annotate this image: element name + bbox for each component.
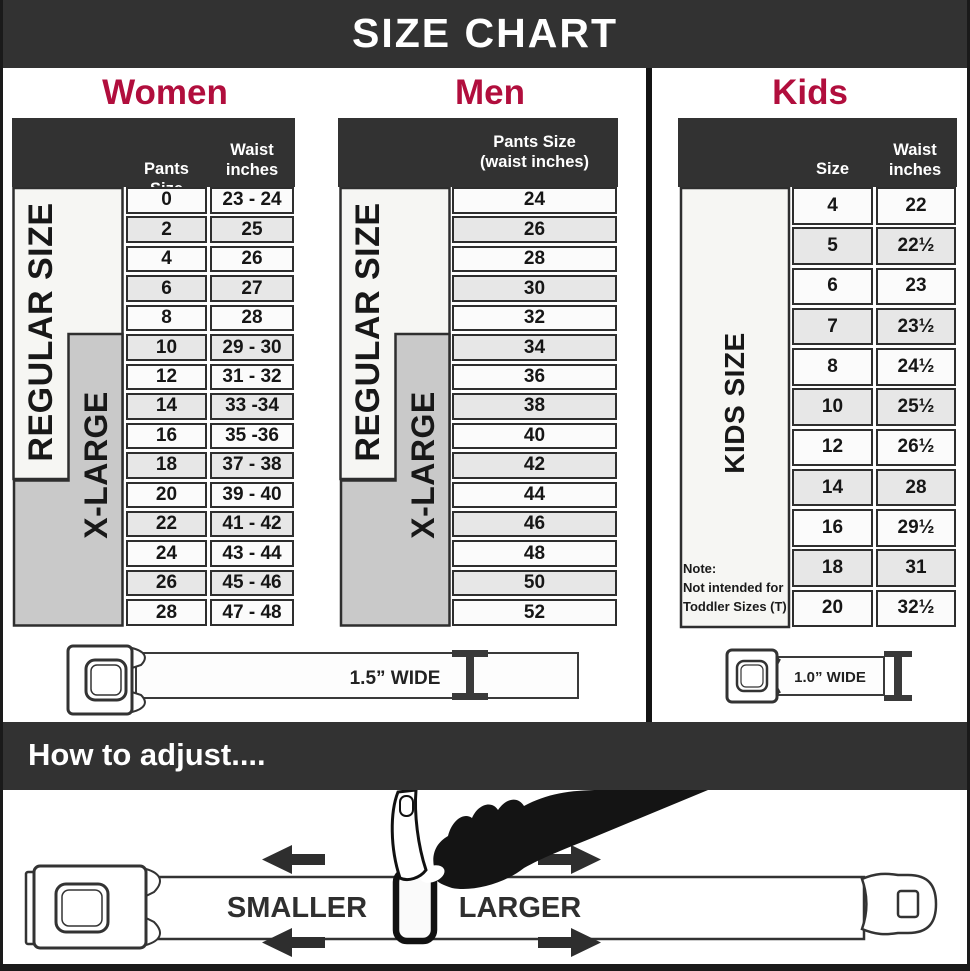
table-row: 38: [452, 393, 617, 420]
table-row: 44: [452, 482, 617, 509]
pants-size-cell: 14: [126, 393, 207, 420]
waist-inches-cell: 23: [876, 268, 956, 306]
pants-size-cell: 10: [126, 334, 207, 361]
waist-inches-cell: 23½: [876, 308, 956, 346]
table-row: 36: [452, 364, 617, 391]
women-xlarge-label: X-LARGE: [79, 315, 113, 615]
women-table-body: 0 23 - 24 2 25 4 26 6 27 8 28 10 29 - 30…: [126, 187, 294, 626]
table-row: 10 29 - 30: [126, 334, 294, 361]
pants-size-cell: 0: [126, 187, 207, 214]
waist-inches-cell: 43 - 44: [210, 540, 294, 567]
smaller-label: SMALLER: [227, 892, 367, 924]
table-row: 6 27: [126, 275, 294, 302]
table-row: 24 43 - 44: [126, 540, 294, 567]
table-row: 26 45 - 46: [126, 570, 294, 597]
table-row: 0 23 - 24: [126, 187, 294, 214]
pants-size-cell: 20: [126, 482, 207, 509]
pants-size-cell: 46: [452, 511, 617, 538]
belt-buckle-icon: [68, 646, 132, 714]
waist-inches-cell: 22½: [876, 227, 956, 265]
table-row: 4 22: [792, 187, 956, 225]
table-row: 6 23: [792, 268, 956, 306]
thumb-illustration: [392, 790, 426, 880]
women-table-header: Pants Size Waist inches: [12, 118, 295, 187]
men-section-title: Men: [330, 72, 650, 114]
table-row: 2 25: [126, 216, 294, 243]
adjust-belt-strap: [112, 877, 864, 939]
kids-note: Note: Not intended for Toddler Sizes (T): [683, 560, 791, 617]
waist-inches-cell: 41 - 42: [210, 511, 294, 538]
table-row: 20 32½: [792, 590, 956, 628]
pants-size-cell: 28: [126, 599, 207, 626]
waist-inches-cell: 39 - 40: [210, 482, 294, 509]
kids-belt-width-label: 1.0” WIDE: [794, 669, 866, 686]
waist-inches-cell: 25½: [876, 388, 956, 426]
waist-inches-cell: 37 - 38: [210, 452, 294, 479]
waist-inches-cell: 29½: [876, 509, 956, 547]
adjust-title: How to adjust....: [0, 722, 970, 788]
table-row: 28 47 - 48: [126, 599, 294, 626]
kids-col-size: Size: [792, 159, 873, 179]
men-xlarge-label: X-LARGE: [406, 315, 440, 615]
waist-inches-cell: 33 -34: [210, 393, 294, 420]
kids-width-measure-icon: [884, 651, 912, 701]
pants-size-cell: 48: [452, 540, 617, 567]
table-row: 16 29½: [792, 509, 956, 547]
pants-size-cell: 32: [452, 305, 617, 332]
pants-size-cell: 2: [126, 216, 207, 243]
kids-buckle-icon: [727, 650, 777, 702]
pants-size-cell: 50: [452, 570, 617, 597]
waist-inches-cell: 26½: [876, 429, 956, 467]
table-row: 20 39 - 40: [126, 482, 294, 509]
women-col-waist: Waist inches: [210, 140, 294, 180]
kids-table-header: Size Waist inches: [678, 118, 957, 187]
kids-table-body: 4 22 5 22½ 6 23 7 23½ 8 24½ 10 25½ 12 26…: [792, 187, 956, 627]
adult-belt-graphic: 1.5” WIDE: [68, 646, 578, 714]
pants-size-cell: 12: [126, 364, 207, 391]
smaller-arrows-icon: [262, 845, 325, 957]
size-cell: 7: [792, 308, 873, 346]
table-row: 4 26: [126, 246, 294, 273]
pants-size-cell: 16: [126, 423, 207, 450]
pants-size-cell: 26: [452, 216, 617, 243]
size-cell: 5: [792, 227, 873, 265]
pants-size-cell: 38: [452, 393, 617, 420]
men-regular-size-label: REGULAR SIZE: [351, 182, 385, 482]
hand-illustration: [433, 790, 708, 889]
kids-col-waist: Waist inches: [875, 140, 955, 180]
table-row: 5 22½: [792, 227, 956, 265]
table-row: 34: [452, 334, 617, 361]
table-row: 40: [452, 423, 617, 450]
adult-belt-width-label: 1.5” WIDE: [350, 668, 441, 689]
waist-inches-cell: 35 -36: [210, 423, 294, 450]
pants-size-cell: 6: [126, 275, 207, 302]
kids-size-label: KIDS SIZE: [718, 253, 752, 553]
pants-size-cell: 26: [126, 570, 207, 597]
pants-size-cell: 18: [126, 452, 207, 479]
waist-inches-cell: 32½: [876, 590, 956, 628]
title-banner: SIZE CHART: [0, 0, 970, 68]
waist-inches-cell: 25: [210, 216, 294, 243]
table-row: 52: [452, 599, 617, 626]
pants-size-cell: 28: [452, 246, 617, 273]
larger-label: LARGER: [459, 892, 582, 924]
table-row: 24: [452, 187, 617, 214]
bottom-border: [0, 964, 970, 971]
table-row: 14 33 -34: [126, 393, 294, 420]
pants-size-cell: 42: [452, 452, 617, 479]
men-table-header: Pants Size (waist inches): [338, 118, 618, 187]
pants-size-cell: 24: [452, 187, 617, 214]
left-border: [0, 0, 3, 971]
table-row: 14 28: [792, 469, 956, 507]
pants-size-cell: 40: [452, 423, 617, 450]
size-cell: 12: [792, 429, 873, 467]
table-row: 16 35 -36: [126, 423, 294, 450]
waist-inches-cell: 28: [210, 305, 294, 332]
waist-inches-cell: 22: [876, 187, 956, 225]
waist-inches-cell: 31 - 32: [210, 364, 294, 391]
waist-inches-cell: 24½: [876, 348, 956, 386]
pants-size-cell: 24: [126, 540, 207, 567]
table-row: 18 31: [792, 549, 956, 587]
waist-inches-cell: 29 - 30: [210, 334, 294, 361]
waist-inches-cell: 45 - 46: [210, 570, 294, 597]
size-cell: 10: [792, 388, 873, 426]
waist-inches-cell: 28: [876, 469, 956, 507]
pants-size-cell: 22: [126, 511, 207, 538]
women-regular-size-label: REGULAR SIZE: [24, 182, 58, 482]
table-row: 12 26½: [792, 429, 956, 467]
table-row: 30: [452, 275, 617, 302]
men-table-body: 24 26 28 30 32 34 36 38 40 42 44 46 48 5…: [452, 187, 617, 626]
table-row: 32: [452, 305, 617, 332]
table-row: 42: [452, 452, 617, 479]
pants-size-cell: 36: [452, 364, 617, 391]
adjust-banner: How to adjust....: [0, 722, 970, 790]
size-cell: 18: [792, 549, 873, 587]
size-cell: 4: [792, 187, 873, 225]
table-row: 18 37 - 38: [126, 452, 294, 479]
pants-size-cell: 52: [452, 599, 617, 626]
kids-belt-graphic: 1.0” WIDE: [727, 650, 912, 702]
waist-inches-cell: 47 - 48: [210, 599, 294, 626]
pants-size-cell: 30: [452, 275, 617, 302]
table-row: 46: [452, 511, 617, 538]
men-col-pants-size: Pants Size (waist inches): [452, 132, 617, 172]
pants-size-cell: 34: [452, 334, 617, 361]
women-section-title: Women: [0, 72, 330, 114]
table-row: 8 24½: [792, 348, 956, 386]
width-measure-icon: [452, 650, 488, 700]
adjust-buckle-icon: [34, 866, 146, 948]
size-chart-infographic: SIZE CHART Women Men Kids Pants Size Wai…: [0, 0, 970, 971]
table-row: 28: [452, 246, 617, 273]
table-row: 50: [452, 570, 617, 597]
table-row: 22 41 - 42: [126, 511, 294, 538]
size-cell: 20: [792, 590, 873, 628]
waist-inches-cell: 31: [876, 549, 956, 587]
belt-tongue-icon: [862, 874, 936, 934]
table-row: 26: [452, 216, 617, 243]
waist-inches-cell: 23 - 24: [210, 187, 294, 214]
size-cell: 14: [792, 469, 873, 507]
size-cell: 6: [792, 268, 873, 306]
belt-slider-icon: [396, 871, 434, 941]
table-row: 8 28: [126, 305, 294, 332]
pants-size-cell: 8: [126, 305, 207, 332]
pants-size-cell: 44: [452, 482, 617, 509]
page-title: SIZE CHART: [0, 0, 970, 66]
kids-section-title: Kids: [650, 72, 970, 114]
waist-inches-cell: 27: [210, 275, 294, 302]
adjust-illustration: SMALLER LARGER: [26, 790, 936, 957]
table-row: 10 25½: [792, 388, 956, 426]
table-row: 48: [452, 540, 617, 567]
pants-size-cell: 4: [126, 246, 207, 273]
size-cell: 16: [792, 509, 873, 547]
waist-inches-cell: 26: [210, 246, 294, 273]
size-cell: 8: [792, 348, 873, 386]
larger-arrows-icon: [538, 845, 601, 957]
table-row: 12 31 - 32: [126, 364, 294, 391]
table-row: 7 23½: [792, 308, 956, 346]
section-divider: [646, 68, 652, 722]
